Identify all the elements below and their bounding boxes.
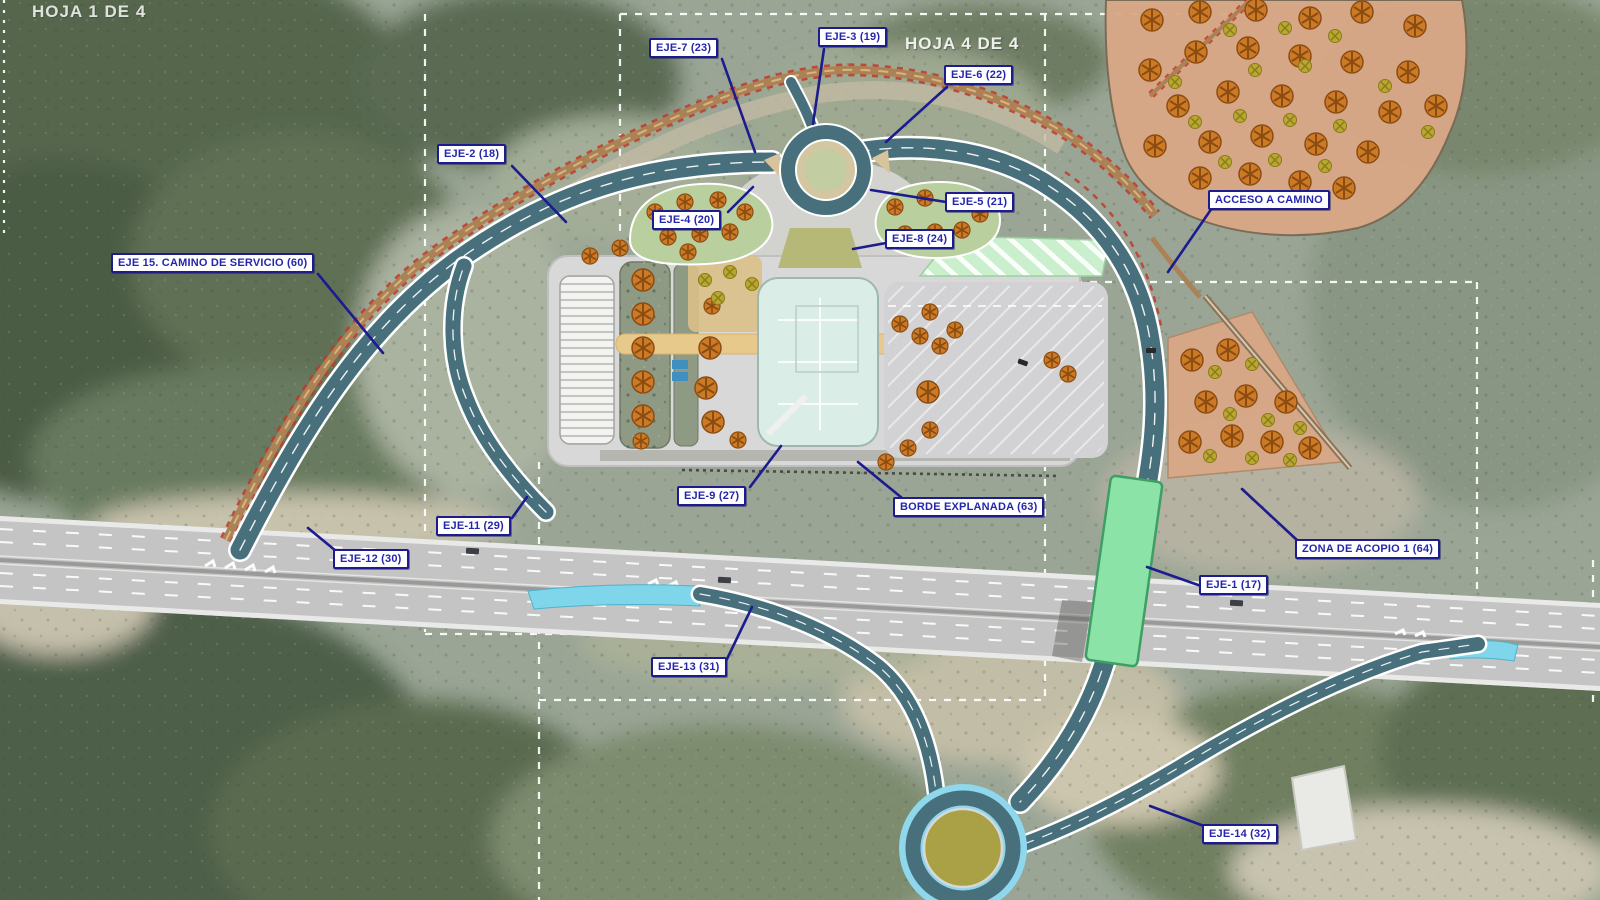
sheet-title-hoja-1: HOJA 1 DE 4 — [32, 2, 146, 22]
callout-acceso-a-camino: ACCESO A CAMINO — [1208, 190, 1330, 210]
service-building — [758, 278, 878, 446]
callout-eje-9: EJE-9 (27) — [677, 486, 746, 506]
truck-parking — [560, 276, 614, 444]
callout-zona-de-acopio-1: ZONA DE ACOPIO 1 (64) — [1295, 539, 1440, 559]
callout-borde-explanada: BORDE EXPLANADA (63) — [893, 497, 1044, 517]
callout-eje-8: EJE-8 (24) — [885, 229, 954, 249]
callout-eje-14: EJE-14 (32) — [1202, 824, 1278, 844]
callout-eje-15-camino-de-servicio: EJE 15. CAMINO DE SERVICIO (60) — [111, 253, 314, 273]
roundabout-north — [780, 124, 872, 216]
callout-eje-13: EJE-13 (31) — [651, 657, 727, 677]
farm-shed — [1292, 766, 1356, 850]
olive-wedge — [778, 228, 862, 268]
plan-viewport: HOJA 1 DE 4 HOJA 4 DE 4 EJE-7 (23) EJE-3… — [0, 0, 1600, 900]
callout-eje-12: EJE-12 (30) — [333, 549, 409, 569]
callout-eje-2: EJE-2 (18) — [437, 144, 506, 164]
callout-eje-11: EJE-11 (29) — [436, 516, 511, 536]
callout-eje-7: EJE-7 (23) — [649, 38, 718, 58]
aerial-plan-canvas — [0, 0, 1600, 900]
callout-eje-6: EJE-6 (22) — [944, 65, 1013, 85]
callout-eje-4: EJE-4 (20) — [652, 210, 721, 230]
callout-eje-5: EJE-5 (21) — [945, 192, 1014, 212]
sheet-title-hoja-4: HOJA 4 DE 4 — [905, 34, 1019, 54]
callout-eje-3: EJE-3 (19) — [818, 27, 887, 47]
callout-eje-1: EJE-1 (17) — [1199, 575, 1268, 595]
